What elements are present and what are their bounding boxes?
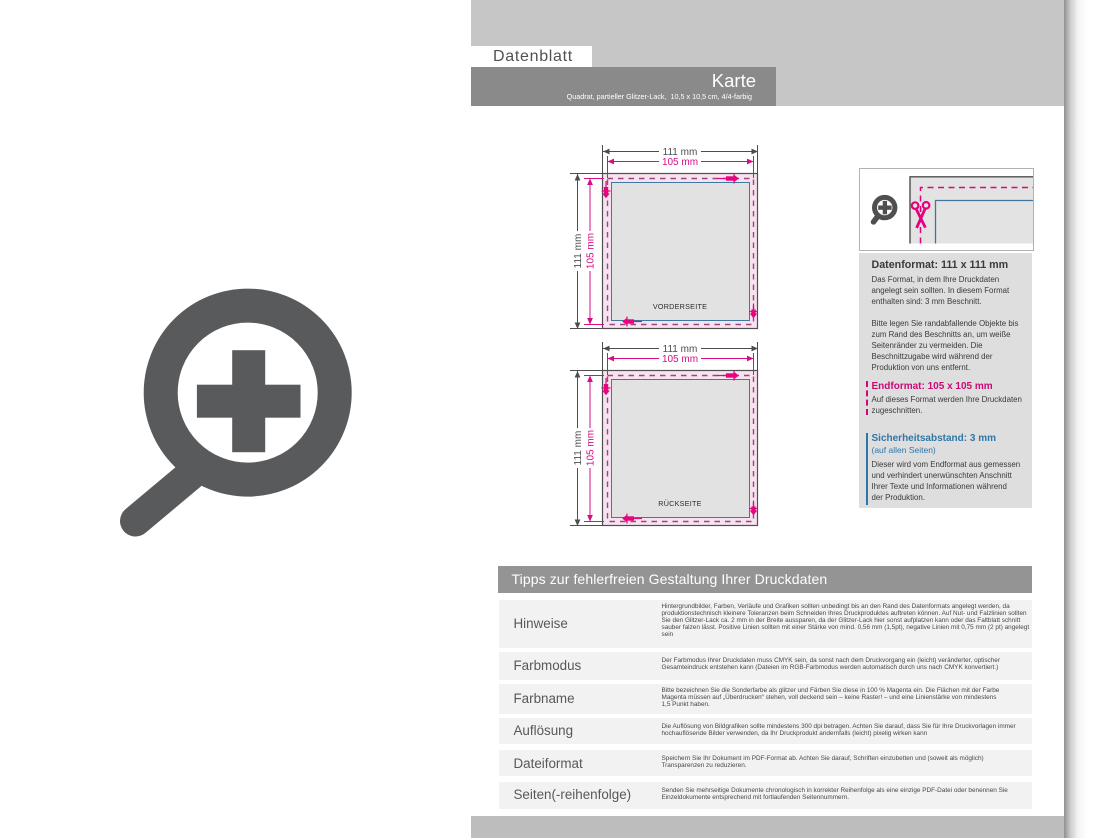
svg-text:105 mm: 105 mm bbox=[662, 157, 698, 168]
svg-text:111 mm: 111 mm bbox=[573, 431, 584, 466]
svg-text:111 mm: 111 mm bbox=[573, 234, 584, 269]
svg-text:VORDERSEITE: VORDERSEITE bbox=[653, 302, 707, 311]
svg-text:105 mm: 105 mm bbox=[586, 430, 597, 466]
svg-text:RÜCKSEITE: RÜCKSEITE bbox=[658, 499, 701, 508]
svg-text:105 mm: 105 mm bbox=[586, 233, 597, 269]
svg-text:105 mm: 105 mm bbox=[662, 354, 698, 365]
